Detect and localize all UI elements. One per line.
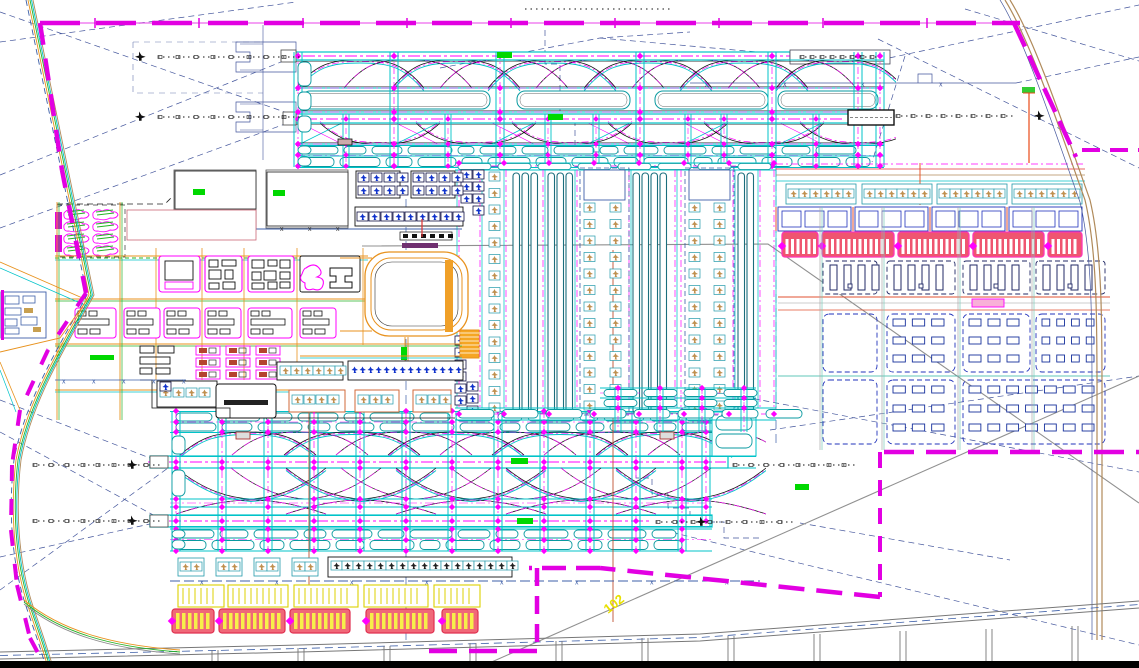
- svg-text:x: x: [152, 379, 156, 386]
- svg-text:x: x: [92, 379, 96, 386]
- svg-text:x: x: [500, 580, 504, 587]
- svg-text:x: x: [62, 379, 66, 386]
- svg-text:x: x: [650, 580, 654, 587]
- svg-text:x: x: [280, 226, 284, 233]
- svg-text:x: x: [939, 82, 943, 89]
- svg-text:x: x: [122, 379, 126, 386]
- svg-text:x: x: [182, 379, 186, 386]
- svg-text:x: x: [575, 580, 579, 587]
- svg-text:x: x: [308, 226, 312, 233]
- svg-text:x: x: [336, 226, 340, 233]
